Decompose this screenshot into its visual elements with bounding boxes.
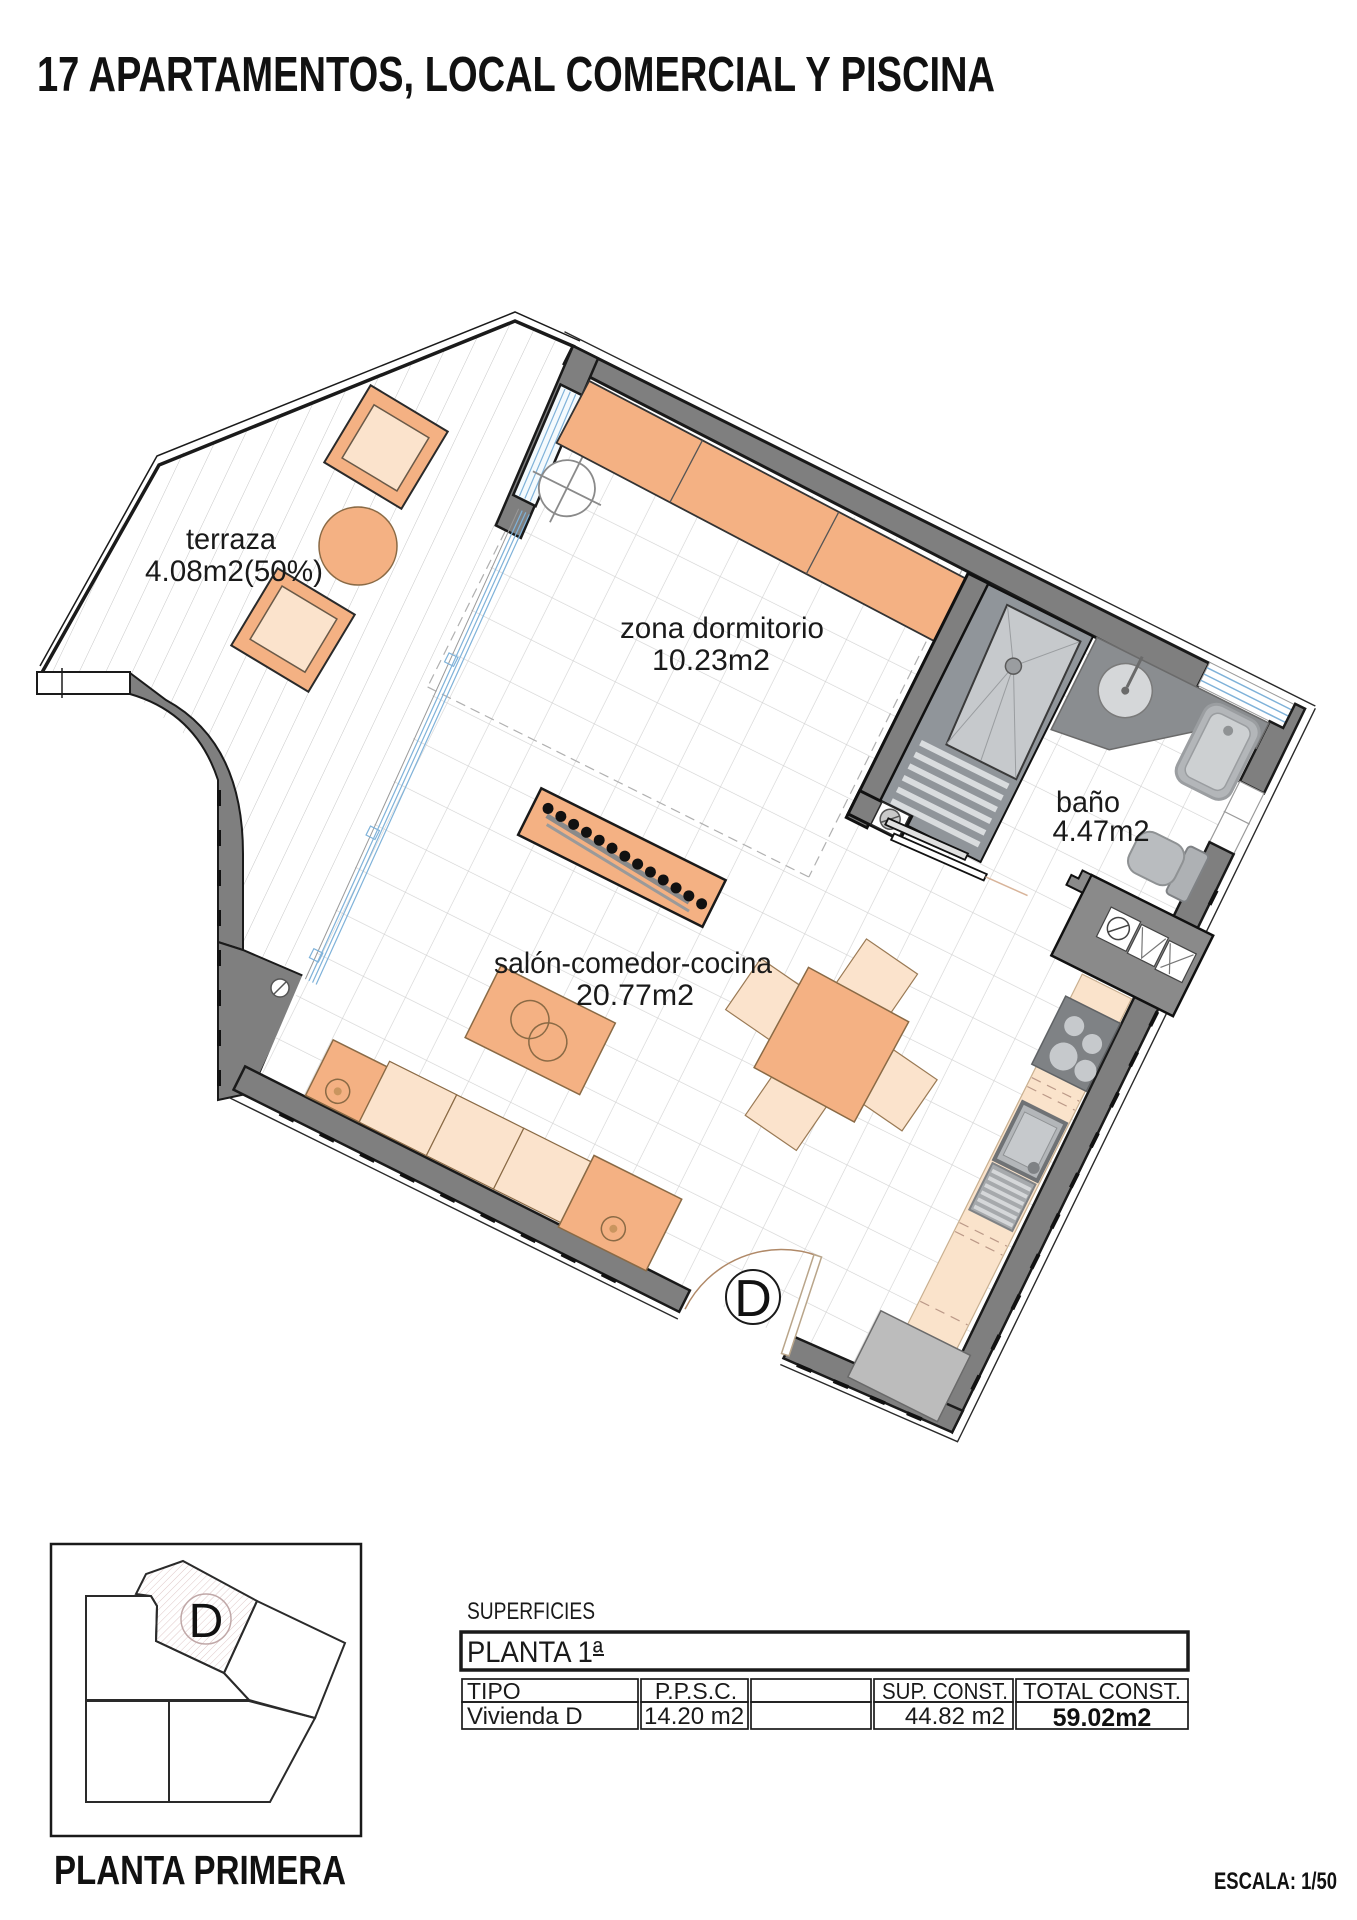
svg-text:terraza: terraza bbox=[186, 523, 276, 556]
svg-text:20.77m2: 20.77m2 bbox=[576, 979, 694, 1012]
svg-text:4.47m2: 4.47m2 bbox=[1053, 815, 1150, 848]
svg-text:PLANTA PRIMERA: PLANTA PRIMERA bbox=[54, 1847, 346, 1893]
svg-text:4.08m2(50%): 4.08m2(50%) bbox=[145, 555, 323, 588]
svg-text:17 APARTAMENTOS, LOCAL COMERCI: 17 APARTAMENTOS, LOCAL COMERCIAL Y PISCI… bbox=[37, 48, 995, 102]
svg-text:salón-comedor-cocina: salón-comedor-cocina bbox=[494, 947, 772, 980]
svg-text:ESCALA: 1/50: ESCALA: 1/50 bbox=[1214, 1868, 1337, 1895]
svg-text:14.20 m2: 14.20 m2 bbox=[644, 1703, 744, 1730]
svg-text:SUPERFICIES: SUPERFICIES bbox=[467, 1598, 595, 1625]
svg-text:10.23m2: 10.23m2 bbox=[652, 644, 770, 677]
svg-text:SUP. CONST.: SUP. CONST. bbox=[882, 1678, 1008, 1704]
svg-text:D: D bbox=[189, 1595, 224, 1648]
svg-text:59.02m2: 59.02m2 bbox=[1053, 1704, 1152, 1732]
svg-text:zona dormitorio: zona dormitorio bbox=[620, 612, 824, 645]
svg-text:TOTAL CONST.: TOTAL CONST. bbox=[1023, 1678, 1181, 1704]
svg-text:Vivienda D: Vivienda D bbox=[467, 1703, 583, 1730]
svg-text:D: D bbox=[734, 1270, 772, 1328]
svg-text:P.P.S.C.: P.P.S.C. bbox=[655, 1678, 737, 1704]
svg-text:PLANTA 1ª: PLANTA 1ª bbox=[467, 1636, 604, 1669]
svg-text:44.82 m2: 44.82 m2 bbox=[905, 1703, 1005, 1730]
svg-text:TIPO: TIPO bbox=[467, 1678, 521, 1704]
